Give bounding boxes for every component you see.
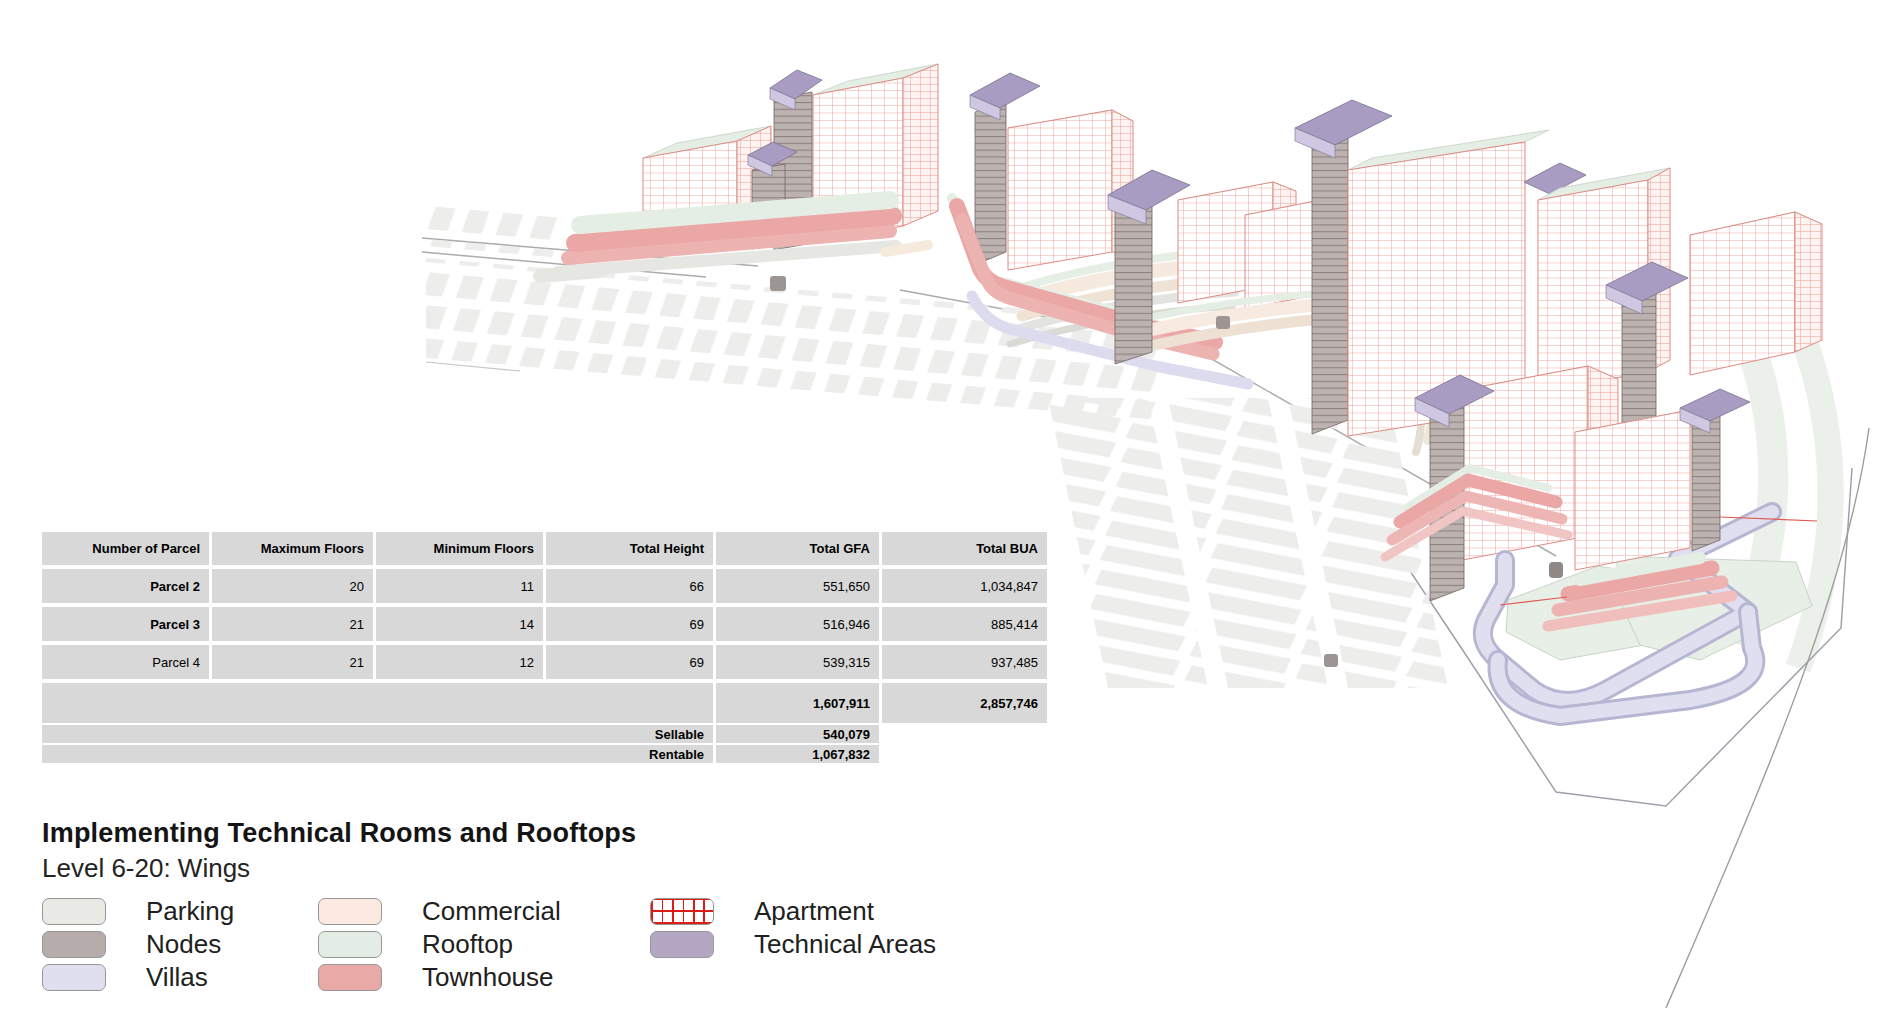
table-cell: 12 xyxy=(376,645,543,679)
legend-label: Villas xyxy=(146,963,208,991)
legend-item-rooftop: Rooftop xyxy=(318,930,513,958)
table-header-row: Number of Parcel Maximum Floors Minimum … xyxy=(42,532,1065,565)
nodes-swatch xyxy=(42,931,106,958)
sellable-value: 540,079 xyxy=(716,725,879,743)
rooftop-swatch xyxy=(318,931,382,958)
table-cell: 551,650 xyxy=(716,569,879,603)
legend-label: Parking xyxy=(146,897,234,925)
legend-item-parking: Parking xyxy=(42,897,234,925)
legend-item-nodes: Nodes xyxy=(42,930,221,958)
table-cell: 14 xyxy=(376,607,543,641)
table-cell xyxy=(42,683,713,723)
table-cell xyxy=(882,725,1047,743)
table-cell: 69 xyxy=(546,607,713,641)
commercial-swatch xyxy=(318,898,382,925)
table-cell: 885,414 xyxy=(882,607,1047,641)
table-cell: Parcel 3 xyxy=(42,607,209,641)
sellable-label: Sellable xyxy=(42,725,713,743)
legend-label: Commercial xyxy=(422,897,561,925)
table-cell: 11 xyxy=(376,569,543,603)
column-header: Minimum Floors xyxy=(376,532,543,565)
column-header: Total BUA xyxy=(882,532,1047,565)
total-bua-cell: 2,857,746 xyxy=(882,683,1047,723)
table-cell: 516,946 xyxy=(716,607,879,641)
site-illustration xyxy=(0,0,1887,1032)
legend-label: Townhouse xyxy=(422,963,554,991)
column-header: Maximum Floors xyxy=(212,532,373,565)
legend-item-technical-areas: Technical Areas xyxy=(650,930,936,958)
rentable-label: Rentable xyxy=(42,745,713,763)
legend-label: Apartment xyxy=(754,897,874,925)
legend-item-commercial: Commercial xyxy=(318,897,561,925)
table-cell: 20 xyxy=(212,569,373,603)
table-cell: Parcel 4 xyxy=(42,645,209,679)
table-row: Parcel 3 21 14 69 516,946 885,414 xyxy=(42,607,1065,641)
table-row: Parcel 2 20 11 66 551,650 1,034,847 xyxy=(42,569,1065,603)
legend-item-apartment: Apartment xyxy=(650,897,874,925)
table-cell xyxy=(882,745,1047,763)
table-cell: 69 xyxy=(546,645,713,679)
column-header: Number of Parcel xyxy=(42,532,209,565)
parcel-summary-table: Number of Parcel Maximum Floors Minimum … xyxy=(42,532,1065,765)
table-cell: 66 xyxy=(546,569,713,603)
legend-item-townhouse: Townhouse xyxy=(318,963,554,991)
technical-areas-swatch xyxy=(650,931,714,958)
page-title: Implementing Technical Rooms and Rooftop… xyxy=(42,818,636,849)
townhouse-swatch xyxy=(318,964,382,991)
table-sellable-row: Sellable 540,079 xyxy=(42,725,1065,743)
table-cell: 937,485 xyxy=(882,645,1047,679)
table-rentable-row: Rentable 1,067,832 xyxy=(42,745,1065,763)
apartment-swatch xyxy=(650,898,714,925)
legend-label: Nodes xyxy=(146,930,221,958)
legend-label: Rooftop xyxy=(422,930,513,958)
table-cell: Parcel 2 xyxy=(42,569,209,603)
table-totals-row: 1,607,911 2,857,746 xyxy=(42,683,1065,723)
villas-swatch xyxy=(42,964,106,991)
rentable-value: 1,067,832 xyxy=(716,745,879,763)
column-header: Total GFA xyxy=(716,532,879,565)
legend-label: Technical Areas xyxy=(754,930,936,958)
table-cell: 21 xyxy=(212,645,373,679)
parcel-2-massing xyxy=(540,64,938,291)
legend-item-villas: Villas xyxy=(42,963,208,991)
page-subtitle: Level 6-20: Wings xyxy=(42,853,250,884)
table-row: Parcel 4 21 12 69 539,315 937,485 xyxy=(42,645,1065,679)
table-cell: 539,315 xyxy=(716,645,879,679)
table-cell: 1,034,847 xyxy=(882,569,1047,603)
total-gfa-cell: 1,607,911 xyxy=(716,683,879,723)
table-cell: 21 xyxy=(212,607,373,641)
column-header: Total Height xyxy=(546,532,713,565)
parking-swatch xyxy=(42,898,106,925)
